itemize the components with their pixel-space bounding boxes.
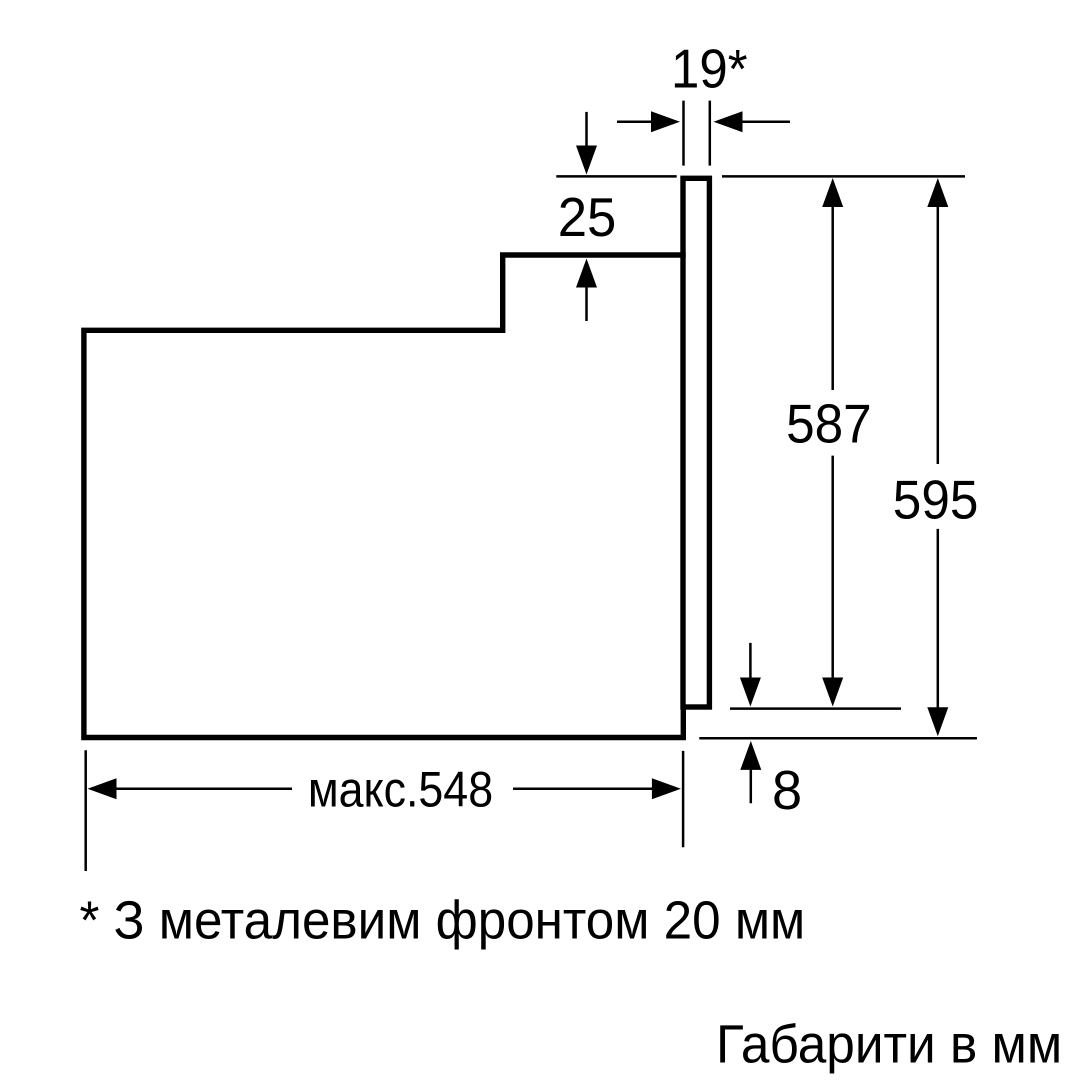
svg-text:* З металевим фронтом 20 мм: * З металевим фронтом 20 мм	[80, 890, 806, 951]
svg-text:587: 587	[786, 394, 872, 455]
svg-text:25: 25	[558, 187, 617, 248]
svg-text:8: 8	[772, 760, 802, 821]
svg-text:595: 595	[893, 470, 979, 531]
svg-text:макс.548: макс.548	[308, 762, 493, 818]
svg-text:19*: 19*	[671, 39, 748, 100]
svg-text:Габарити в мм: Габарити в мм	[716, 1014, 1062, 1074]
